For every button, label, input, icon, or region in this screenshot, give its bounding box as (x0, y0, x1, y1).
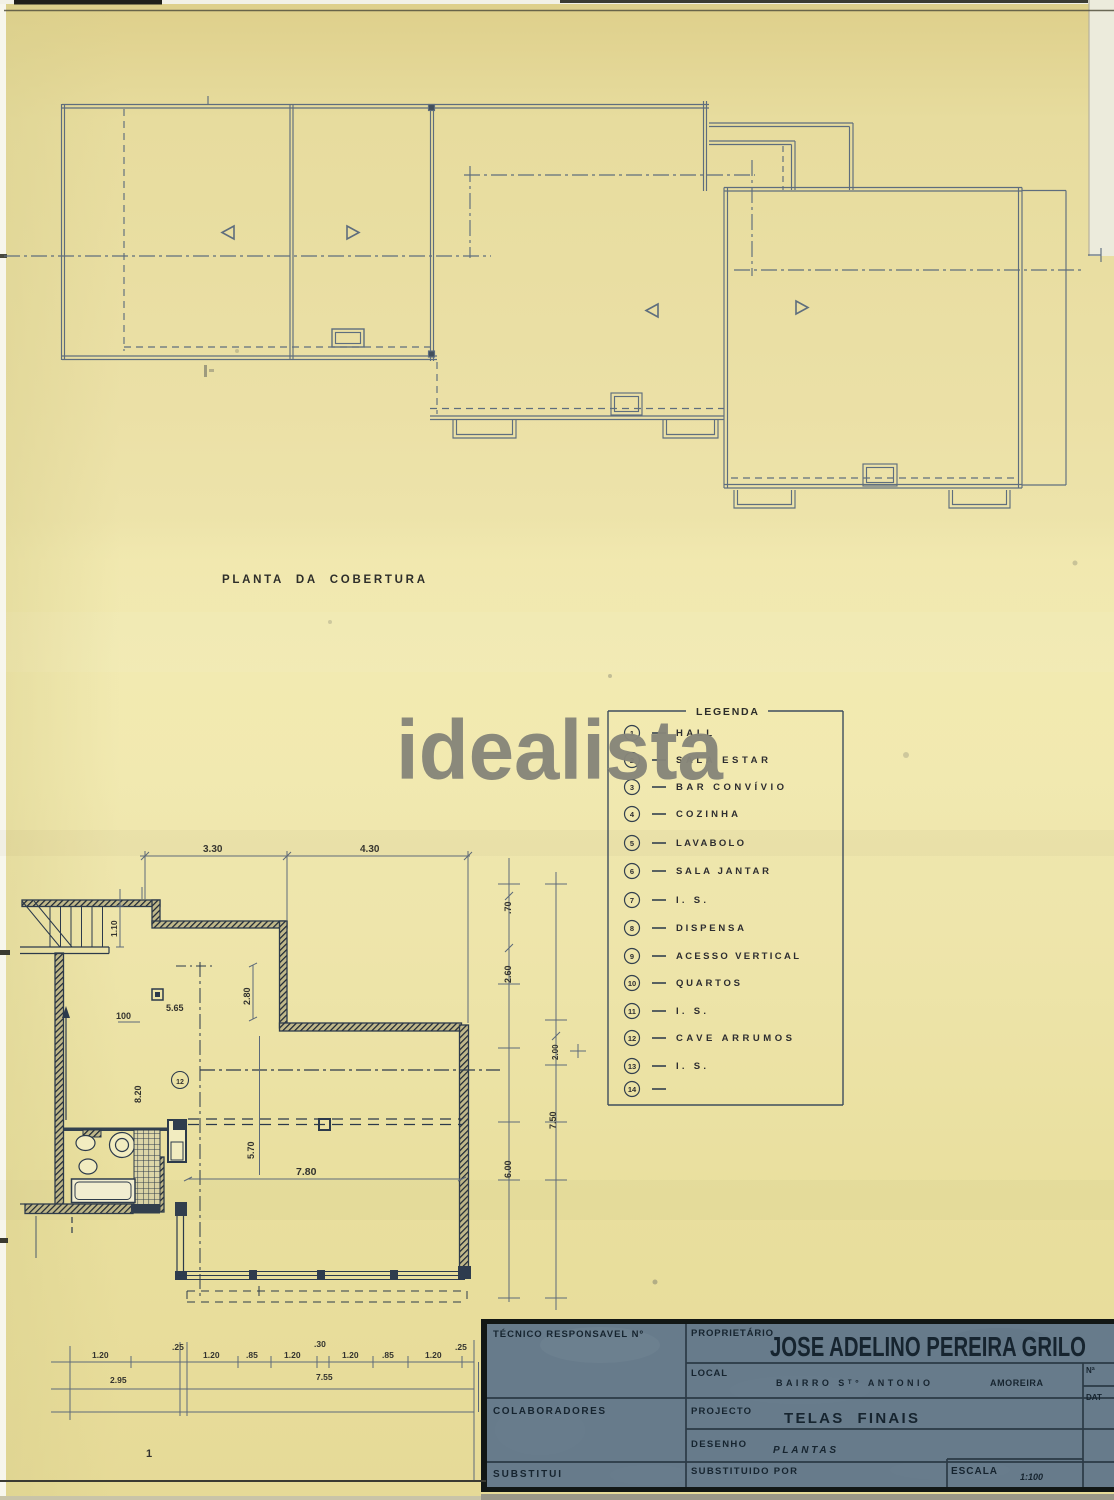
svg-text:TELAS FINAIS: TELAS FINAIS (784, 1410, 918, 1427)
svg-text:JOSE ADELINO PEREIRA GRILO: JOSE ADELINO PEREIRA GRILO (770, 1331, 1086, 1362)
svg-text:9: 9 (630, 952, 634, 961)
svg-text:11: 11 (628, 1007, 636, 1016)
svg-text:.85: .85 (382, 1350, 394, 1360)
svg-text:.85: .85 (246, 1350, 258, 1360)
svg-text:.30: .30 (314, 1339, 326, 1349)
svg-text:8.20: 8.20 (133, 1085, 143, 1103)
svg-text:1.10: 1.10 (109, 920, 119, 937)
svg-text:idealista: idealista (396, 703, 724, 797)
svg-text:1.20: 1.20 (92, 1350, 109, 1360)
svg-text:8: 8 (630, 924, 634, 933)
svg-text:12: 12 (628, 1034, 636, 1043)
svg-text:2.60: 2.60 (503, 965, 513, 983)
svg-text:7.50: 7.50 (548, 1111, 558, 1129)
svg-text:2.00: 2.00 (551, 1044, 560, 1060)
svg-text:6.00: 6.00 (503, 1160, 513, 1178)
svg-text:.70: .70 (503, 901, 513, 914)
svg-text:QUARTOS: QUARTOS (676, 978, 740, 989)
svg-text:LOCAL: LOCAL (691, 1368, 727, 1379)
svg-text:1.20: 1.20 (425, 1350, 442, 1360)
svg-text:DESENHO: DESENHO (691, 1439, 746, 1450)
svg-text:PROJECTO: PROJECTO (691, 1406, 751, 1417)
svg-text:ACESSO VERTICAL: ACESSO VERTICAL (676, 951, 799, 962)
svg-text:5.65: 5.65 (166, 1003, 184, 1013)
svg-text:5.70: 5.70 (246, 1141, 256, 1159)
svg-text:2.80: 2.80 (242, 987, 252, 1005)
svg-text:13: 13 (628, 1062, 636, 1071)
svg-text:Nª: Nª (1086, 1366, 1095, 1375)
svg-text:ESCALA: ESCALA (951, 1466, 997, 1477)
svg-text:1.20: 1.20 (342, 1350, 359, 1360)
svg-text:1:100: 1:100 (1020, 1472, 1043, 1482)
svg-text:2.95: 2.95 (110, 1375, 127, 1385)
svg-text:PROPRIETÁRIO: PROPRIETÁRIO (691, 1328, 773, 1339)
svg-text:PLANTA DA COBERTURA: PLANTA DA COBERTURA (222, 574, 425, 586)
svg-text:TÉCNICO RESPONSAVEL Nº: TÉCNICO RESPONSAVEL Nº (493, 1329, 644, 1340)
svg-text:AMOREIRA: AMOREIRA (990, 1378, 1044, 1388)
svg-text:5: 5 (630, 839, 634, 848)
svg-text:14: 14 (628, 1085, 637, 1094)
svg-text:1.20: 1.20 (203, 1350, 220, 1360)
svg-text:1: 1 (146, 1448, 152, 1460)
svg-text:7.80: 7.80 (296, 1166, 317, 1178)
svg-text:SALA JANTAR: SALA JANTAR (676, 866, 769, 877)
svg-text:1.20: 1.20 (284, 1350, 301, 1360)
svg-text:100: 100 (116, 1011, 131, 1021)
svg-text:6: 6 (630, 867, 634, 876)
svg-text:.25: .25 (455, 1342, 467, 1352)
svg-text:SUBSTITUIDO POR: SUBSTITUIDO POR (691, 1466, 797, 1477)
svg-text:.25: .25 (172, 1342, 184, 1352)
svg-text:DAT: DAT (1086, 1393, 1102, 1402)
svg-text:LAVABOLO: LAVABOLO (676, 838, 744, 849)
svg-text:12: 12 (176, 1079, 184, 1086)
svg-text:DISPENSA: DISPENSA (676, 923, 744, 934)
svg-text:7.55: 7.55 (316, 1372, 333, 1382)
svg-text:7: 7 (630, 896, 634, 905)
svg-text:10: 10 (628, 979, 636, 988)
